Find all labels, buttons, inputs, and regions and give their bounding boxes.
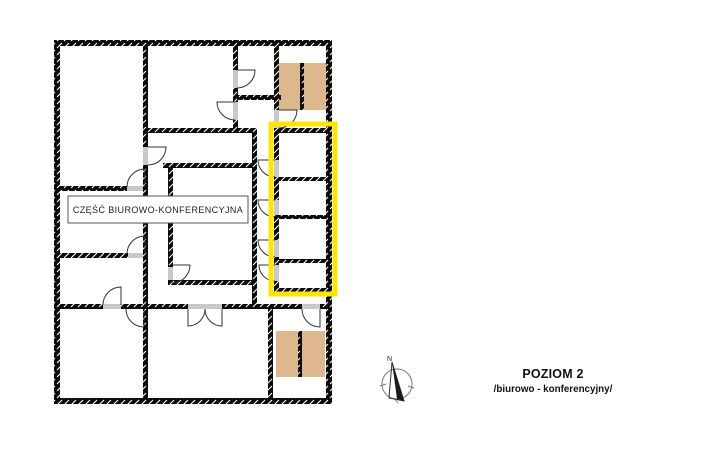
wall-left xyxy=(54,40,60,404)
wall-right xyxy=(326,40,332,404)
door-arc xyxy=(126,309,144,327)
level-caption: POZIOM 2 /biurowo - konferencyjny/ xyxy=(453,367,653,395)
page: CZĘŚĆ BIUROWO-KONFERENCYJNA N POZIOM 2 /… xyxy=(0,0,710,459)
stairs-top-divider xyxy=(300,63,304,110)
door-arc xyxy=(148,147,166,165)
compass-north-label: N xyxy=(387,356,392,363)
door-arc xyxy=(205,309,222,326)
stairs-bottom xyxy=(276,331,325,377)
door-arc xyxy=(127,236,145,254)
door-arc xyxy=(127,169,145,187)
door-arc xyxy=(237,70,255,88)
wall-bottom xyxy=(54,398,332,404)
wall-top xyxy=(54,40,332,46)
door-arc xyxy=(217,102,235,120)
area-label-text: CZĘŚĆ BIUROWO-KONFERENCYJNA xyxy=(73,204,243,215)
area-label-box: CZĘŚĆ BIUROWO-KONFERENCYJNA xyxy=(68,196,248,223)
level-subtitle: /biurowo - konferencyjny/ xyxy=(453,384,653,395)
unit-highlight xyxy=(271,124,335,294)
door-arc xyxy=(302,309,320,327)
stairs-top xyxy=(279,63,326,110)
north-compass: N xyxy=(380,356,414,403)
level-title: POZIOM 2 xyxy=(453,367,653,381)
stairs-bottom-divider xyxy=(298,331,302,377)
door-arc xyxy=(103,287,121,305)
door-arc xyxy=(188,309,205,326)
